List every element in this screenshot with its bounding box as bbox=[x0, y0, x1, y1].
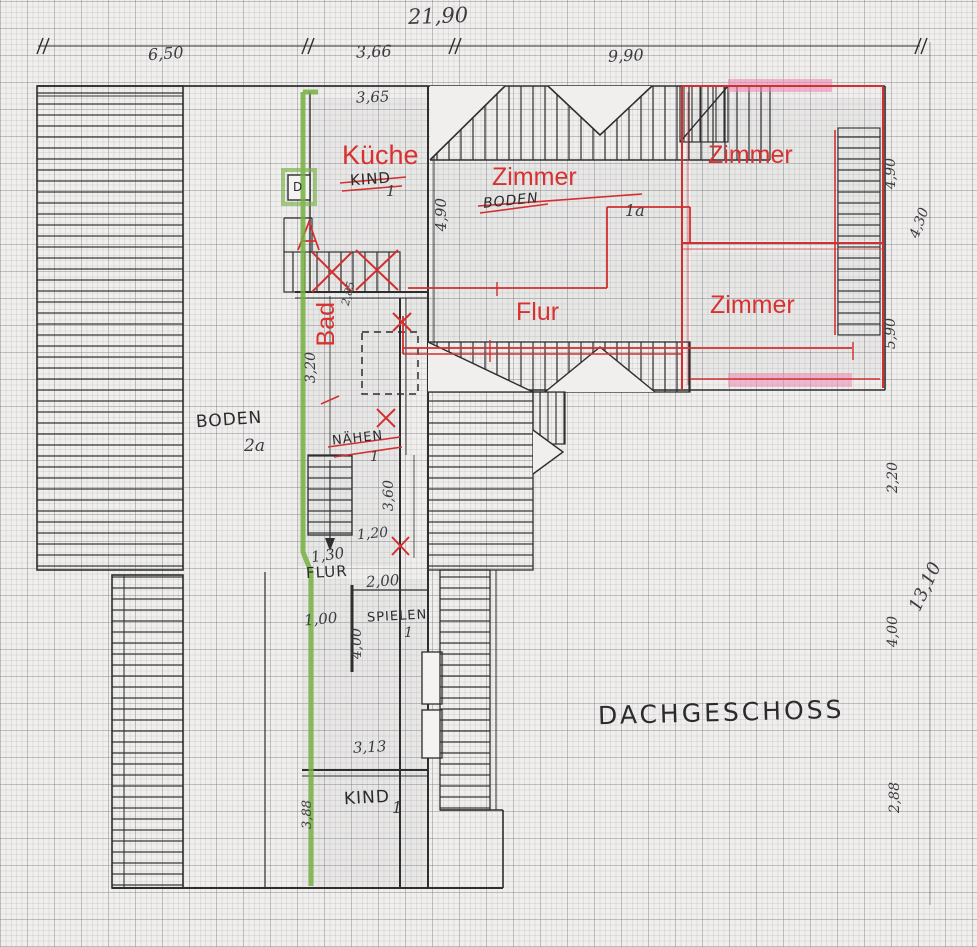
struck-label-boden1a-num: 1a bbox=[625, 203, 645, 219]
label-spielen: SPIELEN bbox=[367, 608, 428, 624]
dim-bad-height: 3,20 bbox=[304, 352, 318, 383]
dim-shaft-height: 3,60 bbox=[382, 480, 396, 511]
dim-flur-lower: 1,00 bbox=[303, 611, 338, 629]
dim-flur-width: 1,30 bbox=[310, 546, 345, 566]
room-label-zimmer-top-right: Zimmer bbox=[708, 143, 793, 168]
dim-kueche-width: 3,65 bbox=[356, 89, 390, 105]
label-stove-d: D bbox=[293, 181, 303, 193]
struck-label-kind-top-num: 1 bbox=[386, 184, 396, 199]
label-boden2a-num: 2a bbox=[244, 438, 265, 455]
dim-seg-mid: 3,66 bbox=[356, 43, 392, 60]
dim-right-5: 4,00 bbox=[886, 616, 900, 647]
room-label-kueche: Küche bbox=[342, 142, 419, 169]
label-kind-bottom-num: 1 bbox=[392, 800, 402, 816]
dim-total-width: 21,90 bbox=[408, 5, 469, 28]
dim-right-3: 5,90 bbox=[884, 318, 898, 349]
dim-seg-left: 6,50 bbox=[147, 45, 184, 63]
label-spielen-num: 1 bbox=[404, 626, 413, 640]
plan-linework bbox=[0, 0, 977, 947]
label-boden2a: BODEN bbox=[195, 410, 262, 432]
dim-kind-width: 3,13 bbox=[353, 739, 387, 756]
room-label-zimmer-bottom-right: Zimmer bbox=[710, 293, 795, 318]
room-label-bad: Bad bbox=[314, 302, 339, 346]
dim-right-6: 2,88 bbox=[888, 782, 902, 813]
plan-title-dachgeschoss: DACHGESCHOSS bbox=[598, 697, 845, 728]
dim-spielen-width: 2,00 bbox=[366, 573, 400, 590]
dim-spielen-depth: 4,00 bbox=[350, 628, 364, 659]
dim-right-1: 4,90 bbox=[884, 158, 898, 189]
dim-kind-side: 3,88 bbox=[301, 800, 314, 829]
struck-label-naehen-num: 1 bbox=[370, 450, 379, 464]
dim-seg-right: 9,90 bbox=[608, 47, 644, 65]
dim-right-4: 2,20 bbox=[886, 462, 900, 493]
room-label-zimmer-center: Zimmer bbox=[492, 165, 577, 190]
room-label-flur: Flur bbox=[516, 300, 559, 325]
label-flur-small: FLUR bbox=[306, 564, 348, 581]
floor-plan-sheet: Küche Zimmer Zimmer Zimmer Flur Bad KIND… bbox=[0, 0, 977, 947]
label-kind-bottom: KIND bbox=[344, 789, 391, 808]
dim-kueche-depth: 4,90 bbox=[434, 198, 449, 231]
dim-niche: 1,20 bbox=[356, 526, 388, 543]
